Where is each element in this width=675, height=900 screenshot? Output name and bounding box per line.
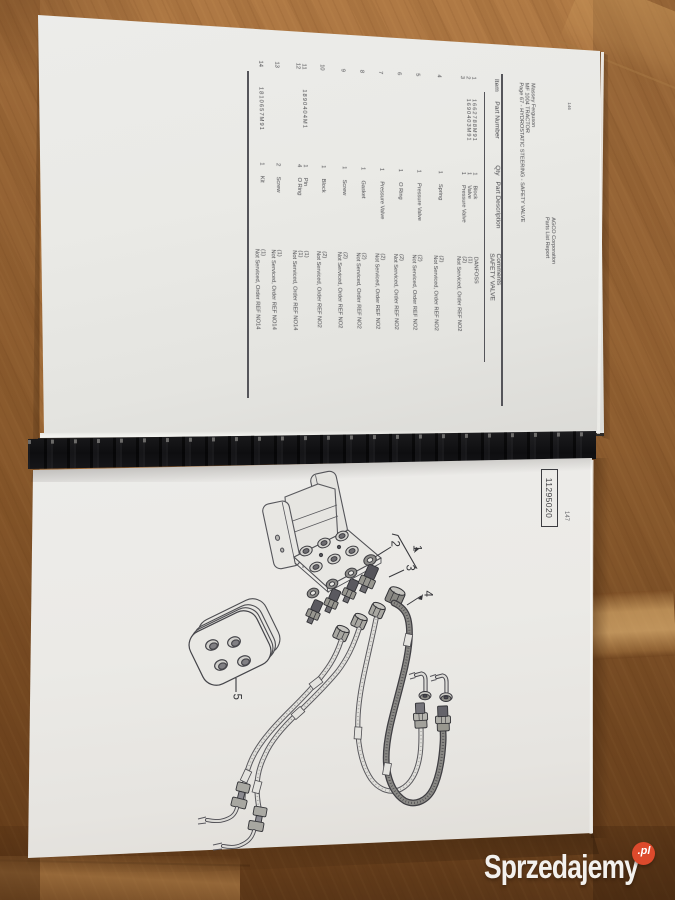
svg-text:5: 5: [231, 694, 243, 700]
svg-text:3: 3: [404, 565, 416, 571]
svg-text:4: 4: [422, 591, 434, 598]
svg-text:2: 2: [389, 541, 401, 547]
